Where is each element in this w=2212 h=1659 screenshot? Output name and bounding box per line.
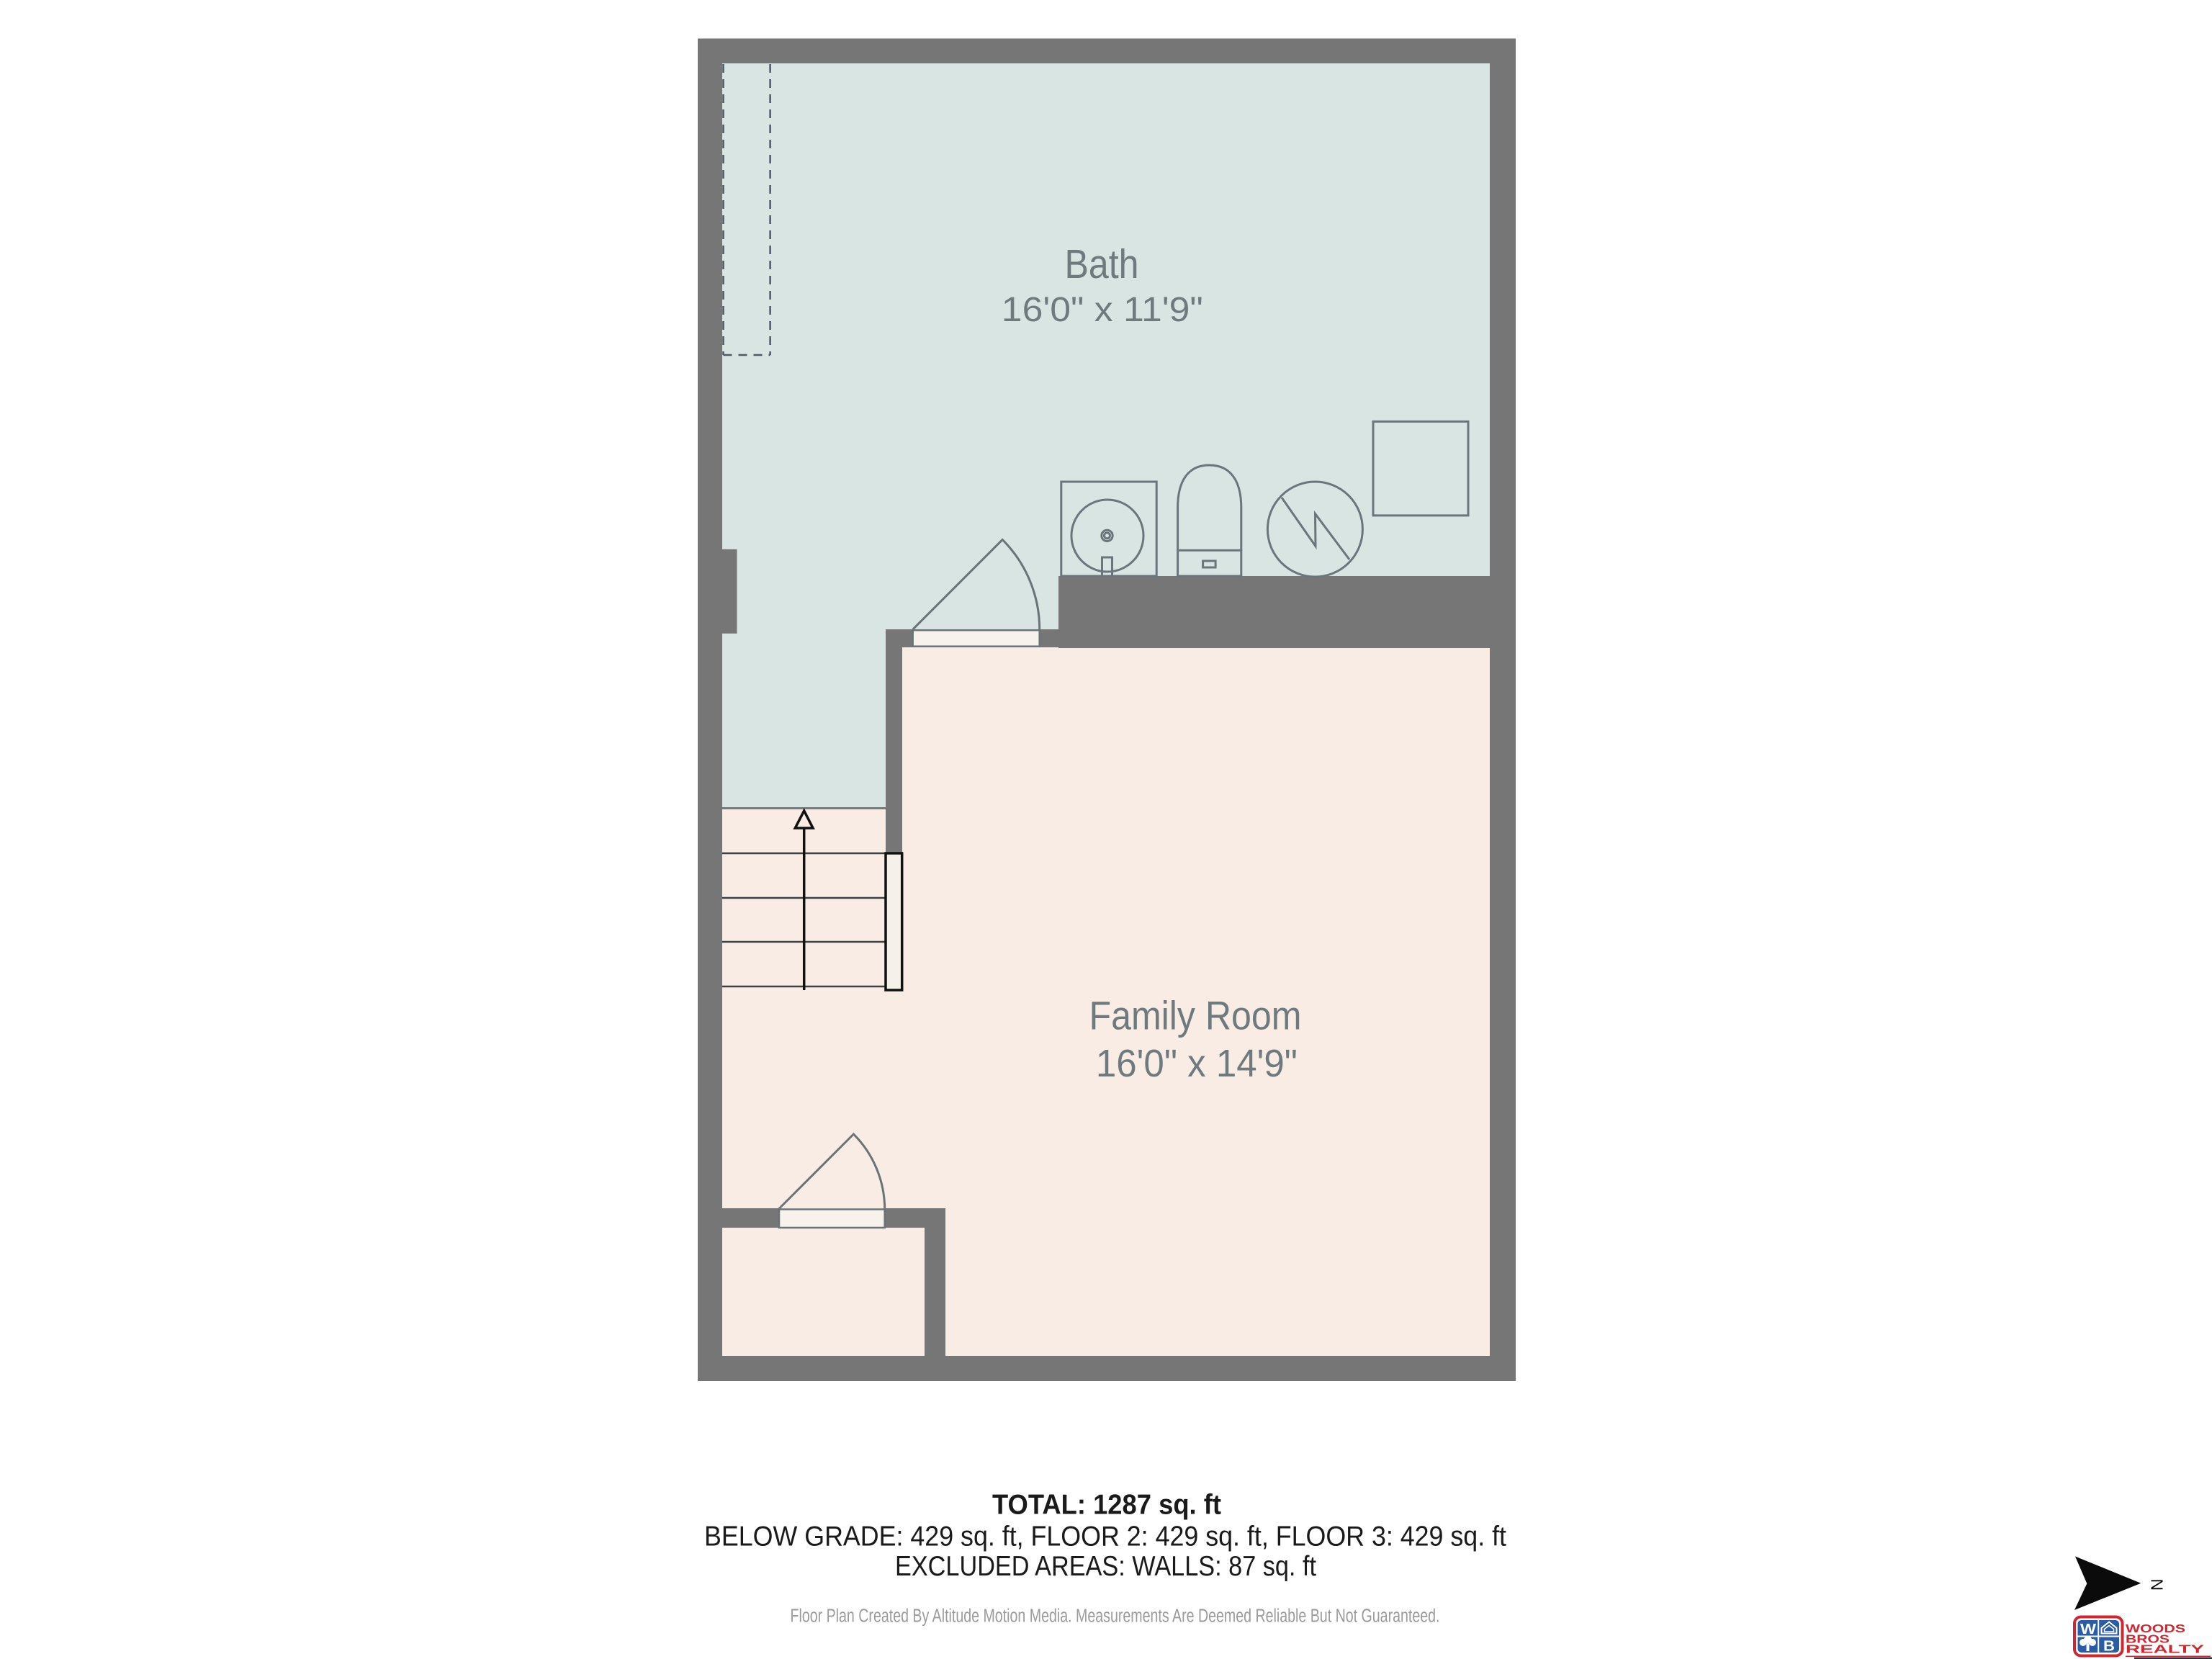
- svg-text:TOTAL: 1287 sq. ft: TOTAL: 1287 sq. ft: [992, 1490, 1221, 1521]
- svg-text:Floor Plan Created By Altitude: Floor Plan Created By Altitude Motion Me…: [791, 1606, 1440, 1627]
- svg-text:REALTY: REALTY: [2126, 1644, 2205, 1656]
- svg-text:BELOW GRADE: 429 sq. ft, FLOOR: BELOW GRADE: 429 sq. ft, FLOOR 2: 429 sq…: [704, 1521, 1506, 1552]
- svg-text:Family Room: Family Room: [1089, 994, 1302, 1038]
- svg-text:N: N: [2148, 1578, 2167, 1591]
- svg-text:16'0" x 11'9": 16'0" x 11'9": [1002, 291, 1203, 329]
- svg-text:B: B: [2103, 1639, 2115, 1655]
- svg-text:EXCLUDED AREAS: WALLS: 87 sq.: EXCLUDED AREAS: WALLS: 87 sq. ft: [895, 1551, 1316, 1582]
- svg-text:W: W: [2080, 1622, 2096, 1637]
- svg-text:Bath: Bath: [1065, 241, 1139, 287]
- svg-text:16'0" x 14'9": 16'0" x 14'9": [1096, 1042, 1298, 1085]
